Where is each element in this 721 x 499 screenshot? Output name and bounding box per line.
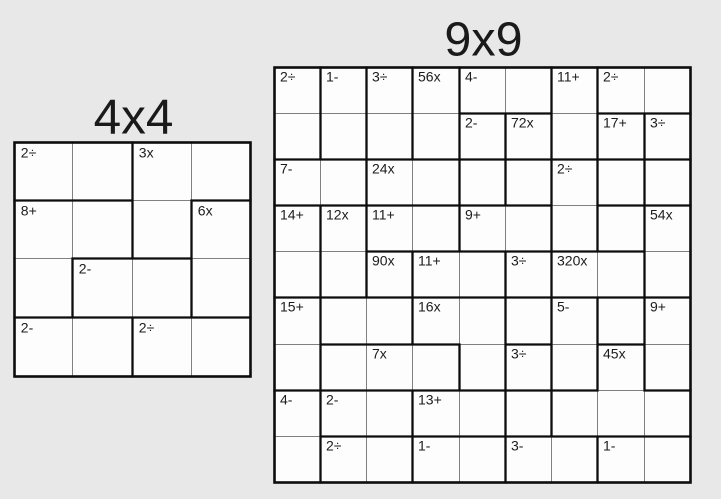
svg-text:2-: 2- (79, 261, 92, 277)
svg-text:13+: 13+ (418, 391, 442, 407)
svg-text:2-: 2- (326, 391, 339, 407)
svg-text:15+: 15+ (280, 298, 304, 314)
svg-text:2-: 2- (465, 114, 478, 130)
svg-text:1-: 1- (603, 437, 616, 453)
svg-text:1-: 1- (326, 68, 339, 84)
svg-text:8+: 8+ (21, 203, 37, 219)
svg-text:2-: 2- (21, 320, 34, 336)
svg-text:1-: 1- (418, 437, 431, 453)
svg-text:12x: 12x (326, 206, 349, 222)
svg-text:4-: 4- (465, 68, 478, 84)
svg-text:6x: 6x (198, 203, 213, 219)
svg-text:7-: 7- (280, 160, 293, 176)
svg-text:3÷: 3÷ (372, 68, 388, 84)
svg-text:24x: 24x (372, 160, 395, 176)
svg-text:3÷: 3÷ (511, 252, 527, 268)
svg-text:11+: 11+ (418, 252, 441, 268)
svg-text:4-: 4- (280, 391, 293, 407)
svg-text:2÷: 2÷ (139, 320, 155, 336)
svg-text:16x: 16x (418, 298, 441, 314)
svg-text:11+: 11+ (557, 68, 580, 84)
svg-text:9x9: 9x9 (444, 13, 522, 67)
svg-text:56x: 56x (418, 68, 441, 84)
svg-text:4x4: 4x4 (94, 90, 174, 145)
svg-text:2÷: 2÷ (603, 68, 619, 84)
svg-text:54x: 54x (650, 206, 673, 222)
svg-text:90x: 90x (372, 252, 395, 268)
svg-text:3x: 3x (139, 145, 154, 161)
svg-text:320x: 320x (557, 252, 587, 268)
svg-text:9+: 9+ (650, 298, 666, 314)
svg-text:45x: 45x (603, 345, 626, 361)
svg-text:7x: 7x (372, 345, 387, 361)
svg-text:9+: 9+ (465, 206, 481, 222)
svg-text:72x: 72x (511, 114, 534, 130)
svg-text:3÷: 3÷ (650, 114, 666, 130)
svg-text:17+: 17+ (603, 114, 627, 130)
svg-text:2÷: 2÷ (326, 437, 342, 453)
svg-text:2÷: 2÷ (280, 68, 296, 84)
svg-text:11+: 11+ (372, 206, 395, 222)
svg-text:3÷: 3÷ (511, 345, 527, 361)
svg-text:2÷: 2÷ (21, 145, 37, 161)
svg-text:5-: 5- (557, 298, 570, 314)
svg-text:14+: 14+ (280, 206, 304, 222)
svg-text:2÷: 2÷ (557, 160, 573, 176)
svg-text:3-: 3- (511, 437, 524, 453)
